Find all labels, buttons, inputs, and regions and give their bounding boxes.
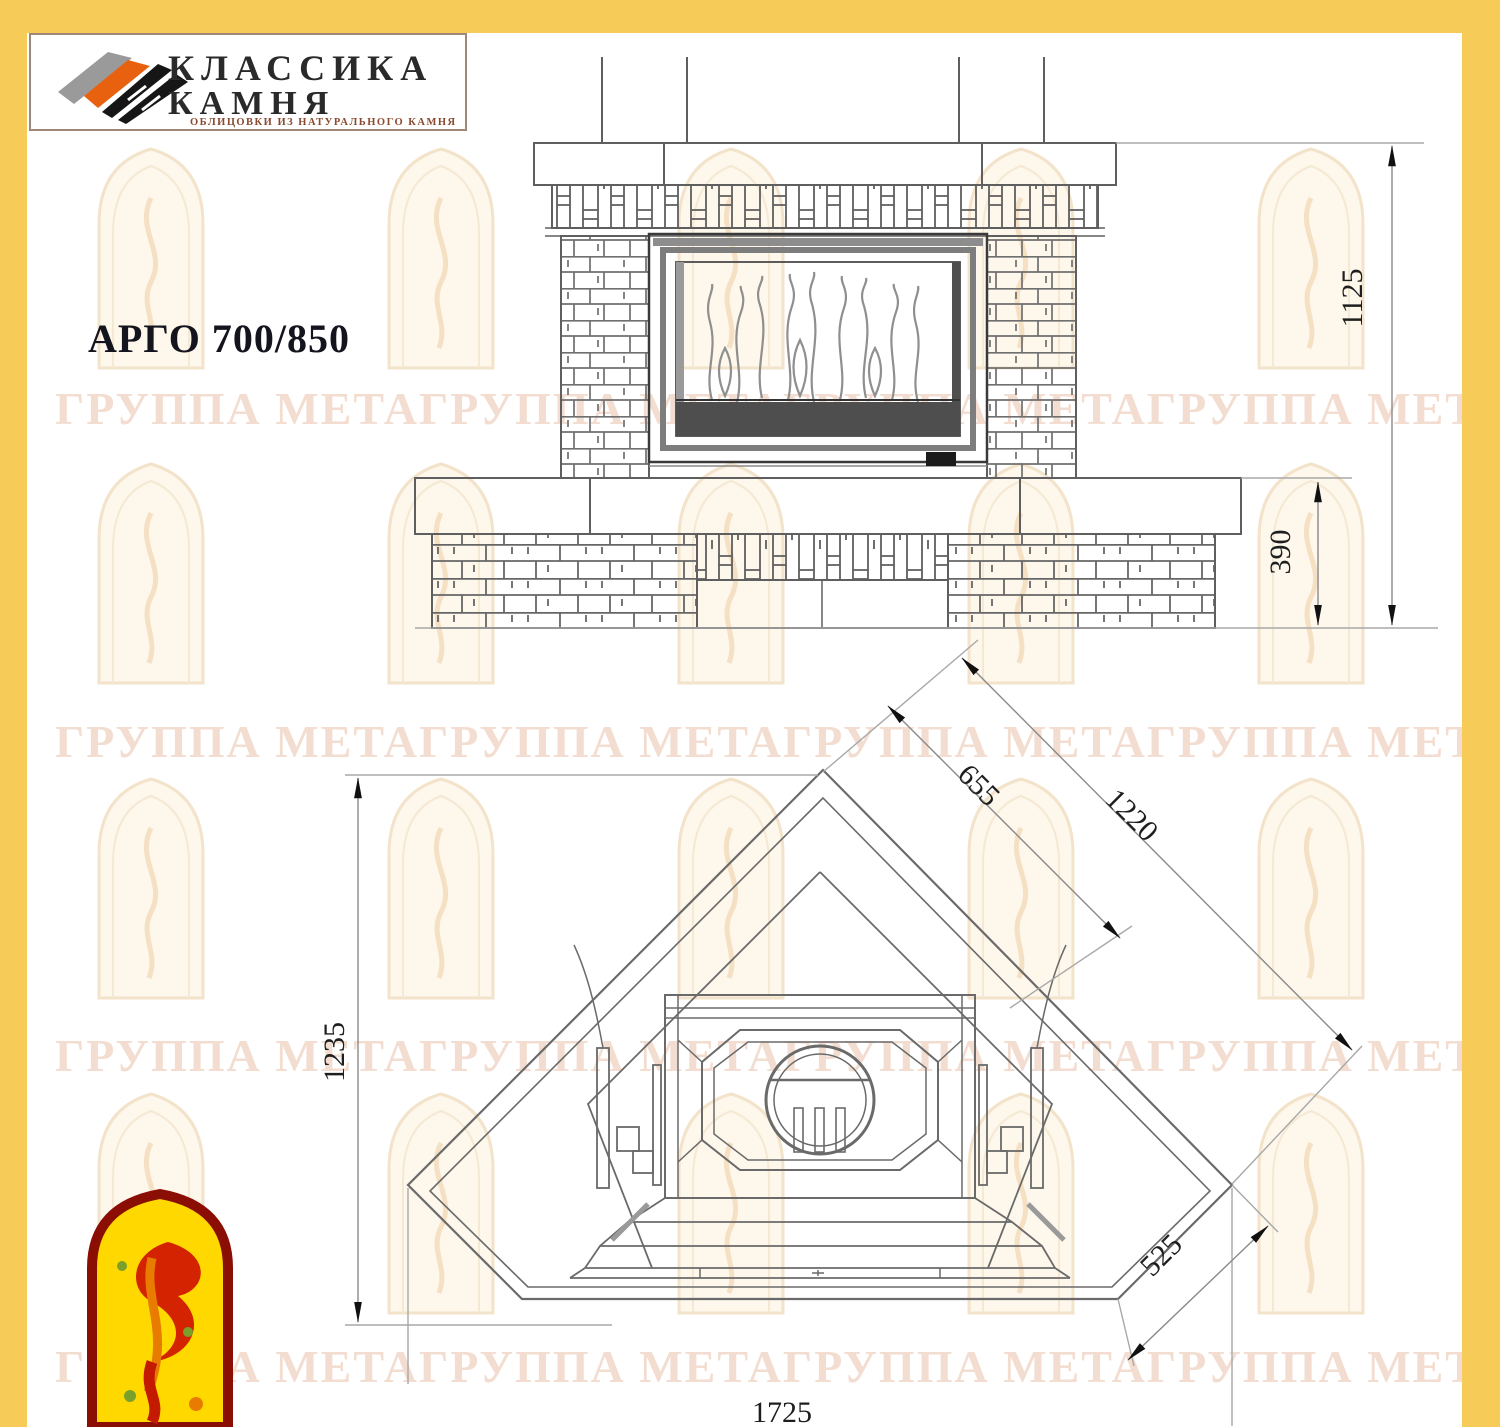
dim-label-1235: 1235 bbox=[318, 1022, 351, 1082]
company-logo: КЛАССИКА КАМНЯ ОБЛИЦОВКИ ИЗ НАТУРАЛЬНОГО… bbox=[30, 34, 466, 130]
dim-label-1125: 1125 bbox=[1336, 269, 1369, 328]
dim-label-1220: 1220 bbox=[1099, 782, 1165, 848]
dim-label-1725: 1725 bbox=[752, 1396, 812, 1427]
base-masonry bbox=[432, 534, 1215, 628]
company-tagline: ОБЛИЦОВКИ ИЗ НАТУРАЛЬНОГО КАМНЯ bbox=[190, 117, 457, 128]
firebox-hearth-band bbox=[676, 402, 960, 436]
frieze-slat-band bbox=[552, 185, 1098, 228]
grill-bar bbox=[836, 1108, 845, 1152]
watermark-row: ГРУППА МЕТАГРУППА МЕТАГРУППА МЕТАГРУППА … bbox=[55, 1341, 1500, 1392]
dim-label-390: 390 bbox=[1264, 530, 1297, 575]
watermark-row: ГРУППА МЕТАГРУППА МЕТАГРУППА МЕТАГРУППА … bbox=[55, 716, 1500, 767]
base-slat-band bbox=[697, 534, 948, 580]
right-brick-column bbox=[987, 236, 1076, 478]
page-title: АРГО 700/850 bbox=[88, 316, 350, 361]
left-brick-column bbox=[561, 236, 649, 478]
chimney-lines bbox=[602, 57, 1044, 143]
page: ГРУППА МЕТАГРУППА МЕТАГРУППА МЕТАГРУППА … bbox=[0, 0, 1500, 1427]
grill-bar bbox=[794, 1108, 803, 1152]
meta-emblem bbox=[92, 1194, 228, 1427]
drawing-canvas: ГРУППА МЕТАГРУППА МЕТАГРУППА МЕТАГРУППА … bbox=[0, 0, 1500, 1427]
bench-slab bbox=[415, 478, 1241, 534]
company-name-line1: КЛАССИКА bbox=[168, 48, 433, 88]
damper-handle bbox=[926, 452, 956, 466]
watermark-row: ГРУППА МЕТАГРУППА МЕТАГРУППА МЕТАГРУППА … bbox=[55, 1030, 1500, 1081]
